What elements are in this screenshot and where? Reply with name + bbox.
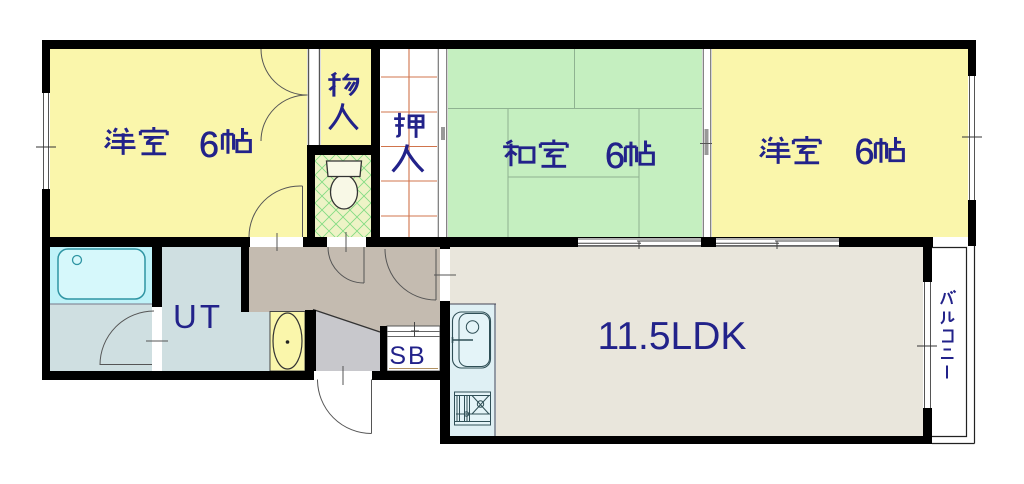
svg-text:6: 6 [854,131,874,172]
svg-text:6: 6 [199,124,219,165]
svg-text:11.5LDK: 11.5LDK [598,315,747,358]
svg-text:UT: UT [173,298,223,335]
svg-text:6: 6 [605,135,625,176]
svg-text:SB: SB [389,342,426,370]
